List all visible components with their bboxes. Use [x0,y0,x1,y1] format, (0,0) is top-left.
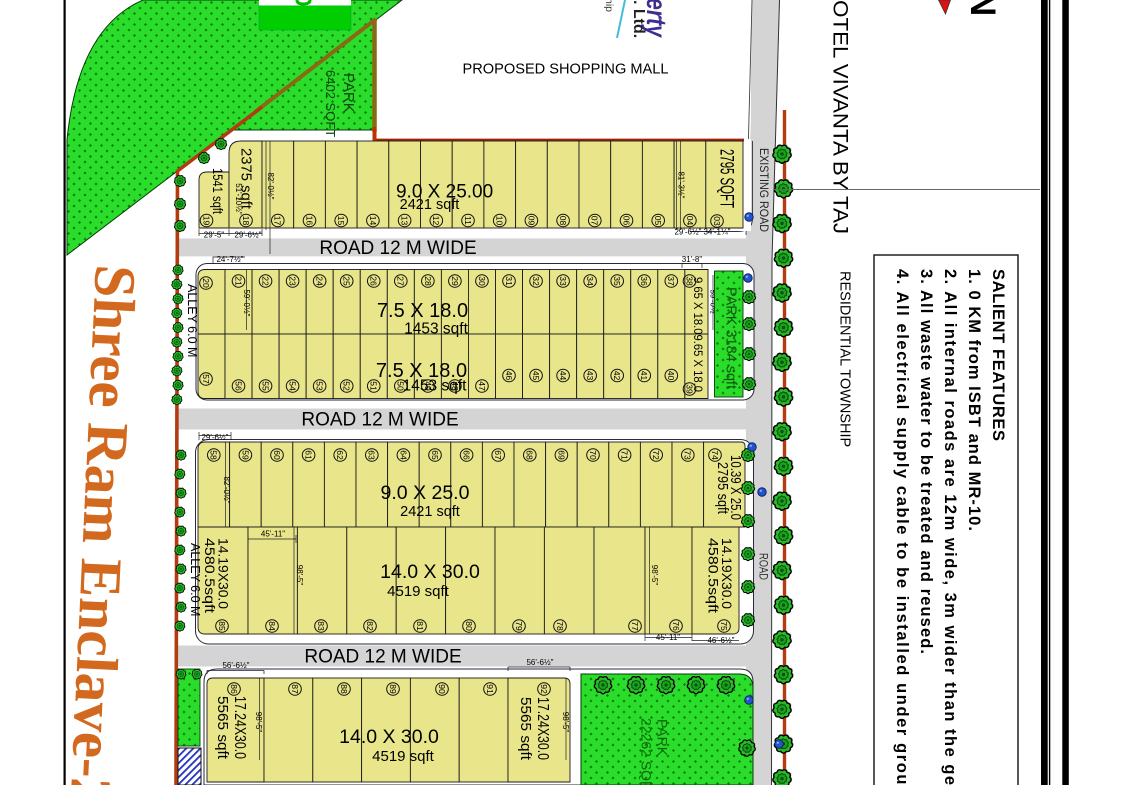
svg-text:98'-5": 98'-5" [295,565,304,586]
svg-text:82'-0½": 82'-0½" [266,172,275,199]
svg-text:1453 sqft: 1453 sqft [404,321,468,338]
svg-text:24: 24 [315,276,325,286]
svg-text:21: 21 [233,276,243,286]
svg-text:45'-11": 45'-11" [656,633,680,642]
svg-text:PARK: PARK [340,73,357,113]
svg-text:61: 61 [304,450,314,460]
svg-text:EXISTING ROAD: EXISTING ROAD [757,148,771,232]
svg-text:29'-6½": 29'-6½" [234,231,261,240]
svg-text:22262 SQFT: 22262 SQFT [639,718,655,785]
svg-text:44: 44 [558,371,568,381]
svg-text:56: 56 [233,381,243,391]
svg-text:80: 80 [464,621,474,631]
svg-text:77: 77 [630,621,640,631]
svg-text:47: 47 [477,381,487,391]
svg-text:51'-10½": 51'-10½" [234,183,243,215]
svg-text:87: 87 [290,684,300,694]
svg-text:92: 92 [539,684,549,694]
svg-text:ROAD: ROAD [757,553,769,580]
svg-text:ALLEY 6.0 M: ALLEY 6.0 M [185,284,199,357]
svg-text:14: 14 [368,216,378,226]
svg-text:29'-6½": 29'-6½" [201,433,228,442]
svg-text:PARK: PARK [655,719,671,757]
svg-text:29: 29 [450,276,460,286]
svg-text:46: 46 [504,371,514,381]
svg-text:28: 28 [423,276,433,286]
svg-text:3. All waste water to be treat: 3. All waste water to be treated and reu… [917,269,935,654]
svg-text:4580.5sqft: 4580.5sqft [706,538,722,613]
svg-text:14.0 X 30.0: 14.0 X 30.0 [339,726,439,748]
svg-text:67: 67 [493,450,503,460]
svg-text:33: 33 [558,276,568,286]
svg-text:73: 73 [683,450,693,460]
svg-text:13: 13 [400,216,410,226]
svg-text:63: 63 [367,450,377,460]
svg-text:N: N [963,0,1002,16]
svg-text:25: 25 [342,276,352,286]
svg-text:53: 53 [315,381,325,391]
svg-text:32: 32 [531,276,541,286]
svg-text:56'-6½": 56'-6½" [526,658,553,667]
svg-text:72: 72 [651,450,661,460]
svg-text:56'-6½": 56'-6½" [222,661,249,670]
svg-text:46'-6½": 46'-6½" [707,636,734,645]
svg-text:12: 12 [431,216,441,226]
svg-text:17.24X30.0: 17.24X30.0 [231,696,248,759]
svg-text:89: 89 [388,684,398,694]
svg-text:7.5 X 18.0: 7.5 X 18.0 [377,300,468,322]
svg-text:29'-6½": 29'-6½" [674,228,701,237]
svg-text:2421 sqft: 2421 sqft [400,504,460,520]
svg-text:17: 17 [273,216,283,226]
svg-text:57: 57 [201,374,211,384]
svg-text:ALLEY 6.0 M: ALLEY 6.0 M [188,543,202,616]
svg-text:1453 sqft: 1453 sqft [403,378,467,395]
svg-text:5565 sqft: 5565 sqft [214,696,231,760]
svg-text:76: 76 [671,621,681,631]
svg-text:1. 0 KM from ISBT and MR-10.: 1. 0 KM from ISBT and MR-10. [965,269,983,531]
svg-text:04: 04 [685,216,695,226]
svg-text:60: 60 [272,450,282,460]
svg-text:23: 23 [288,276,298,286]
svg-text:75: 75 [719,621,729,631]
svg-text:14.0 X 30.0: 14.0 X 30.0 [380,561,480,583]
svg-text:81'-3½": 81'-3½" [677,171,686,198]
svg-text:06: 06 [621,216,631,226]
svg-text:29'-5": 29'-5" [204,231,225,240]
svg-text:66: 66 [462,450,472,460]
svg-text:55: 55 [260,381,270,391]
svg-text:2795 sqft: 2795 sqft [714,462,731,515]
svg-text:10: 10 [495,216,505,226]
svg-text:1541 sqft: 1541 sqft [210,168,225,214]
svg-text:30: 30 [477,276,487,286]
svg-text:4. All electrical supply cable: 4. All electrical supply cable to be ins… [893,269,911,785]
svg-text:20: 20 [201,278,211,288]
svg-text:62: 62 [335,450,345,460]
svg-text:22: 22 [260,276,270,286]
svg-text:36: 36 [639,276,649,286]
svg-text:78: 78 [555,621,565,631]
svg-text:59'-0½": 59'-0½" [242,289,251,316]
svg-text:42: 42 [612,371,622,381]
svg-text:65: 65 [430,450,440,460]
svg-text:86: 86 [229,684,239,694]
svg-text:16: 16 [304,216,314,226]
svg-text:ROAD 12 M WIDE: ROAD 12 M WIDE [304,647,461,668]
svg-text:41: 41 [639,371,649,381]
svg-text:74: 74 [710,450,720,460]
svg-text:71: 71 [620,450,630,460]
svg-text:03: 03 [712,216,722,226]
svg-text:85: 85 [217,621,227,631]
svg-text:35: 35 [612,276,622,286]
svg-text:45: 45 [531,371,541,381]
svg-text:27: 27 [396,276,406,286]
svg-text:82'-0½": 82'-0½" [222,476,231,503]
svg-text:9.0 X 25.0: 9.0 X 25.0 [381,482,470,504]
svg-text:90: 90 [437,684,447,694]
svg-text:HOTEL VIVANTA BY TAJ: HOTEL VIVANTA BY TAJ [829,0,852,234]
svg-text:15: 15 [336,216,346,226]
svg-text:34'-1¼": 34'-1¼" [703,228,730,237]
svg-text:hip: hip [603,0,615,12]
svg-text:2421 sqft: 2421 sqft [400,197,460,213]
svg-text:91: 91 [485,684,495,694]
svg-text:84: 84 [267,621,277,631]
svg-text:24'-7½": 24'-7½" [216,255,243,264]
svg-text:82: 82 [365,621,375,631]
svg-text:26: 26 [369,276,379,286]
svg-text:SALIENT FEATURES: SALIENT FEATURES [989,269,1007,441]
svg-text:17.24X30.0: 17.24X30.0 [534,697,551,760]
svg-text:58: 58 [209,450,219,460]
svg-text:4580.5sqft: 4580.5sqft [202,538,218,613]
svg-text:4519 sqft: 4519 sqft [372,748,435,765]
svg-text:RESIDENTIAL TOWNSHIP: RESIDENTIAL TOWNSHIP [837,271,853,447]
svg-text:64: 64 [398,450,408,460]
svg-text:ROAD 12 M WIDE: ROAD 12 M WIDE [301,410,458,431]
svg-text:37: 37 [666,276,676,286]
svg-text:18: 18 [241,216,251,226]
svg-text:70: 70 [588,450,598,460]
svg-text:34: 34 [585,276,595,286]
svg-text:31'-8": 31'-8" [682,255,703,264]
svg-text:2795 SQFT: 2795 SQFT [716,149,737,208]
svg-text:09: 09 [526,216,536,226]
svg-text:07: 07 [590,216,600,226]
svg-text:05: 05 [653,216,663,226]
svg-text:69: 69 [556,450,566,460]
svg-text:43: 43 [585,371,595,381]
svg-text:45'-11": 45'-11" [261,530,285,539]
svg-text:11: 11 [463,216,473,225]
svg-text:40: 40 [666,371,676,381]
svg-text:83: 83 [316,621,326,631]
svg-text:98'-5": 98'-5" [650,565,659,586]
svg-text:31: 31 [504,276,514,286]
svg-text:9.65 X 18.09.65 X 18.0: 9.65 X 18.09.65 X 18.0 [691,277,703,392]
svg-text:5565 sqft: 5565 sqft [517,697,534,761]
svg-text:PROPOSED SHOPPING MALL: PROPOSED SHOPPING MALL [463,62,669,78]
svg-text:88: 88 [339,684,349,694]
svg-text:19: 19 [201,216,211,226]
svg-text:79: 79 [514,621,524,631]
svg-text:51: 51 [369,381,379,391]
svg-text:81: 81 [415,621,425,631]
svg-text:ROAD 12 M WIDE: ROAD 12 M WIDE [319,238,476,259]
svg-text:. Ltd.: . Ltd. [630,0,647,38]
svg-text:52: 52 [342,381,352,391]
svg-text:98'-5": 98'-5" [254,712,263,733]
svg-text:6402 SQFT: 6402 SQFT [323,70,338,137]
svg-text:68: 68 [525,450,535,460]
svg-text:54: 54 [288,381,298,391]
svg-text:98'-5": 98'-5" [561,712,570,733]
svg-text:4519 sqft: 4519 sqft [387,583,450,600]
svg-text:08: 08 [558,216,568,226]
svg-text:PARK 3184 sqft: PARK 3184 sqft [723,287,739,389]
svg-text:59: 59 [240,450,250,460]
